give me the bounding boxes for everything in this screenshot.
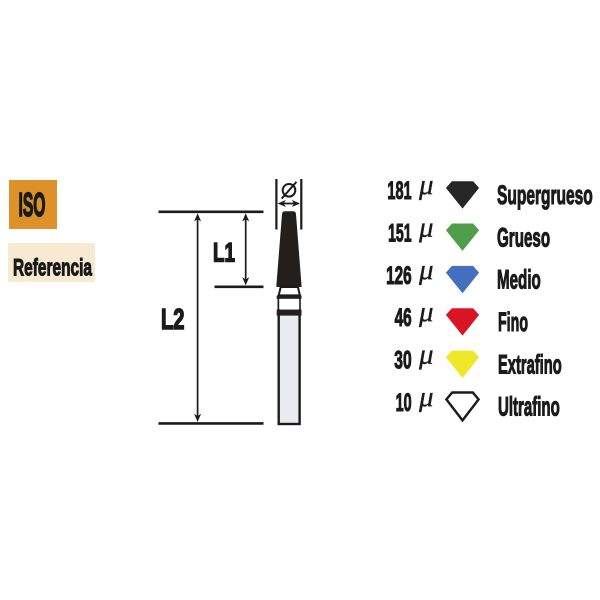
svg-text:μ: μ bbox=[418, 169, 434, 201]
svg-text:Referencia: Referencia bbox=[13, 255, 92, 282]
svg-text:μ: μ bbox=[418, 254, 434, 286]
svg-text:μ: μ bbox=[418, 381, 434, 413]
svg-text:μ: μ bbox=[418, 212, 434, 244]
svg-text:Ultrafino: Ultrafino bbox=[498, 392, 560, 422]
svg-text:μ: μ bbox=[418, 296, 434, 328]
svg-text:ISO: ISO bbox=[19, 187, 46, 224]
svg-text:Extrafino: Extrafino bbox=[498, 349, 562, 379]
svg-text:10: 10 bbox=[396, 389, 412, 417]
svg-text:151: 151 bbox=[388, 220, 412, 248]
svg-text:46: 46 bbox=[395, 304, 412, 332]
svg-text:181: 181 bbox=[387, 177, 411, 205]
svg-text:L2: L2 bbox=[161, 304, 185, 336]
svg-text:Medio: Medio bbox=[497, 265, 541, 295]
svg-text:μ: μ bbox=[418, 339, 434, 371]
svg-text:Fino: Fino bbox=[498, 307, 528, 337]
svg-text:126: 126 bbox=[386, 262, 412, 290]
svg-text:30: 30 bbox=[394, 347, 411, 375]
svg-text:Grueso: Grueso bbox=[497, 222, 550, 252]
svg-text:L1: L1 bbox=[213, 237, 235, 267]
svg-text:Supergrueso: Supergrueso bbox=[497, 180, 593, 210]
